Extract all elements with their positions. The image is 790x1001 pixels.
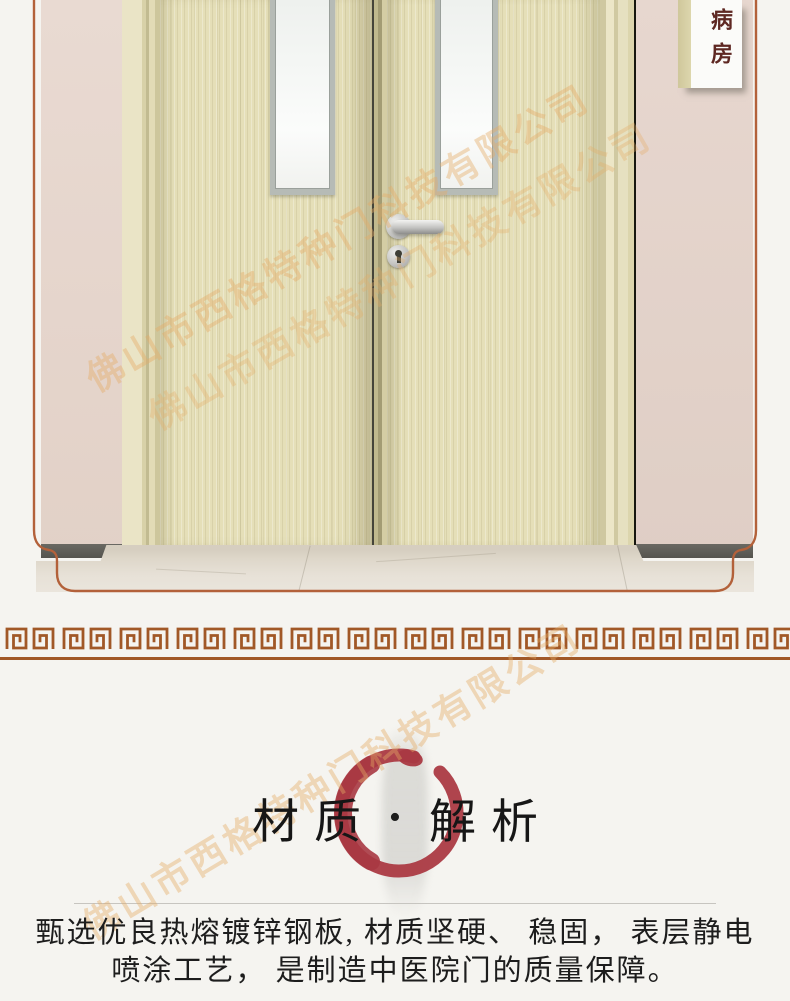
description-paragraph: 甄选优良热熔镀锌钢板, 材质坚硬、 稳固， 表层静电 喷涂工艺， 是制造中医院门… [0,914,790,990]
door-leaf-left [160,0,372,545]
door-frame-right [600,0,636,545]
product-detail-page: 病房 佛山市西格特种门科技有限公司 佛山市西格特种门科技有限公司 佛山市西格特种… [0,0,790,1001]
floor-vein [376,553,496,562]
left-wall [41,0,124,558]
meander-pattern [0,626,790,650]
keyhole-icon [395,250,402,257]
meander-border [0,626,790,660]
floor-seam [617,545,628,591]
section-title-separator-dot: • [389,794,401,841]
ward-sign: 病房 [678,0,742,88]
description-line-1: 甄选优良热熔镀锌钢板, 材质坚硬、 稳固， 表层静电 [0,914,790,952]
door-photo: 病房 佛山市西格特种门科技有限公司 佛山市西格特种门科技有限公司 [0,0,790,600]
floor-vein [156,569,246,575]
lock-escutcheon [387,245,410,268]
section-title: 材质 • 解析 [0,783,790,852]
door-window-right [435,0,498,195]
door-handle-lever [392,220,444,234]
door-frame-left [122,0,160,545]
meander-rule [0,657,790,660]
ward-sign-edge [678,0,691,88]
door-leaf-right [387,0,600,545]
section-title-left: 材质 [252,783,376,852]
ward-sign-label: 病房 [704,8,736,76]
door-window-left [270,0,335,195]
right-baseboard [636,544,753,558]
door-meeting-gap [372,0,387,545]
section-title-right: 解析 [429,783,553,852]
floor-seam [298,546,310,592]
description-line-2: 喷涂工艺， 是制造中医院门的质量保障。 [0,952,790,990]
